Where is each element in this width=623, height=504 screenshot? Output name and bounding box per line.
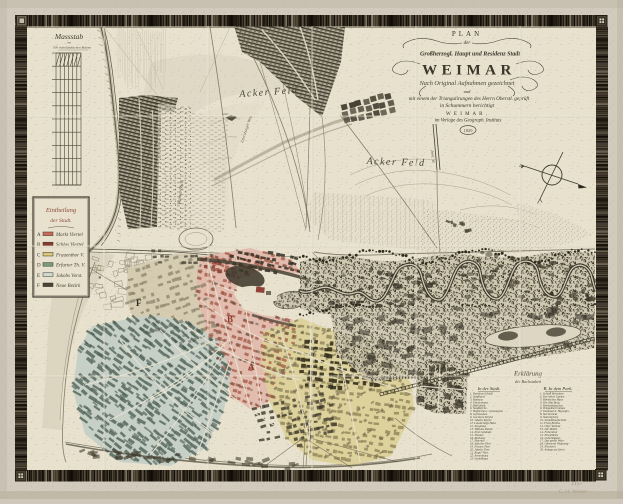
svg-text:Massstab: Massstab [54, 32, 84, 41]
svg-text:F: F [136, 298, 142, 308]
svg-text:WEIMAR: WEIMAR [422, 63, 516, 79]
svg-text:Markt Viertel: Markt Viertel [55, 233, 83, 238]
svg-text:Großherzogl. Haupt und Residen: Großherzogl. Haupt und Residenz Stadt [420, 52, 520, 58]
svg-text:im Verlage des Geograph. Insti: im Verlage des Geograph. Instituts [435, 119, 502, 124]
svg-text:mit einem der Triangulirungen: mit einem der Triangulirungen des Herrn … [409, 95, 530, 102]
svg-text:E: E [37, 274, 40, 279]
svg-text:Neue Bezirk: Neue Bezirk [55, 284, 81, 289]
svg-text:Frauenthor V.: Frauenthor V. [55, 253, 84, 258]
svg-text:1157: 1157 [571, 481, 584, 487]
svg-text:A: A [248, 362, 255, 372]
svg-text:in Schummern berichtigt: in Schummern berichtigt [440, 103, 495, 109]
svg-text:Jakobs Vorst.: Jakobs Vorst. [56, 274, 83, 279]
svg-text:C. 14. Weimar: C. 14. Weimar [559, 490, 588, 495]
svg-text:B. In dem Park.: B. In dem Park. [544, 386, 573, 391]
svg-text:A: A [37, 233, 41, 238]
svg-text:Nach Original Aufnahmen gezeic: Nach Original Aufnahmen gezeichnet [419, 80, 515, 87]
svg-text:In der Stadt.: In der Stadt. [477, 386, 501, 391]
svg-text:und: und [464, 89, 472, 94]
svg-text:Erfurter Th. V.: Erfurter Th. V. [55, 264, 85, 269]
svg-text:F: F [37, 284, 40, 289]
svg-text:23. Schießhaus: 23. Schießhaus [470, 456, 489, 460]
svg-text:PLAN: PLAN [452, 30, 482, 38]
svg-text:Eintheilung: Eintheilung [45, 207, 77, 214]
svg-text:nach Jena: nach Jena [488, 248, 504, 253]
svg-text:der Buchstaben: der Buchstaben [515, 379, 541, 384]
svg-text:B: B [227, 314, 233, 324]
svg-text:der: der [464, 41, 471, 46]
svg-text:500 rheinländischen Ruthen: 500 rheinländischen Ruthen [53, 46, 91, 50]
svg-text:1829: 1829 [464, 128, 474, 133]
svg-text:der Stadt.: der Stadt. [50, 218, 71, 224]
svg-text:D: D [37, 264, 41, 269]
svg-text:20. Anlage am Stern: 20. Anlage am Stern [540, 448, 565, 452]
